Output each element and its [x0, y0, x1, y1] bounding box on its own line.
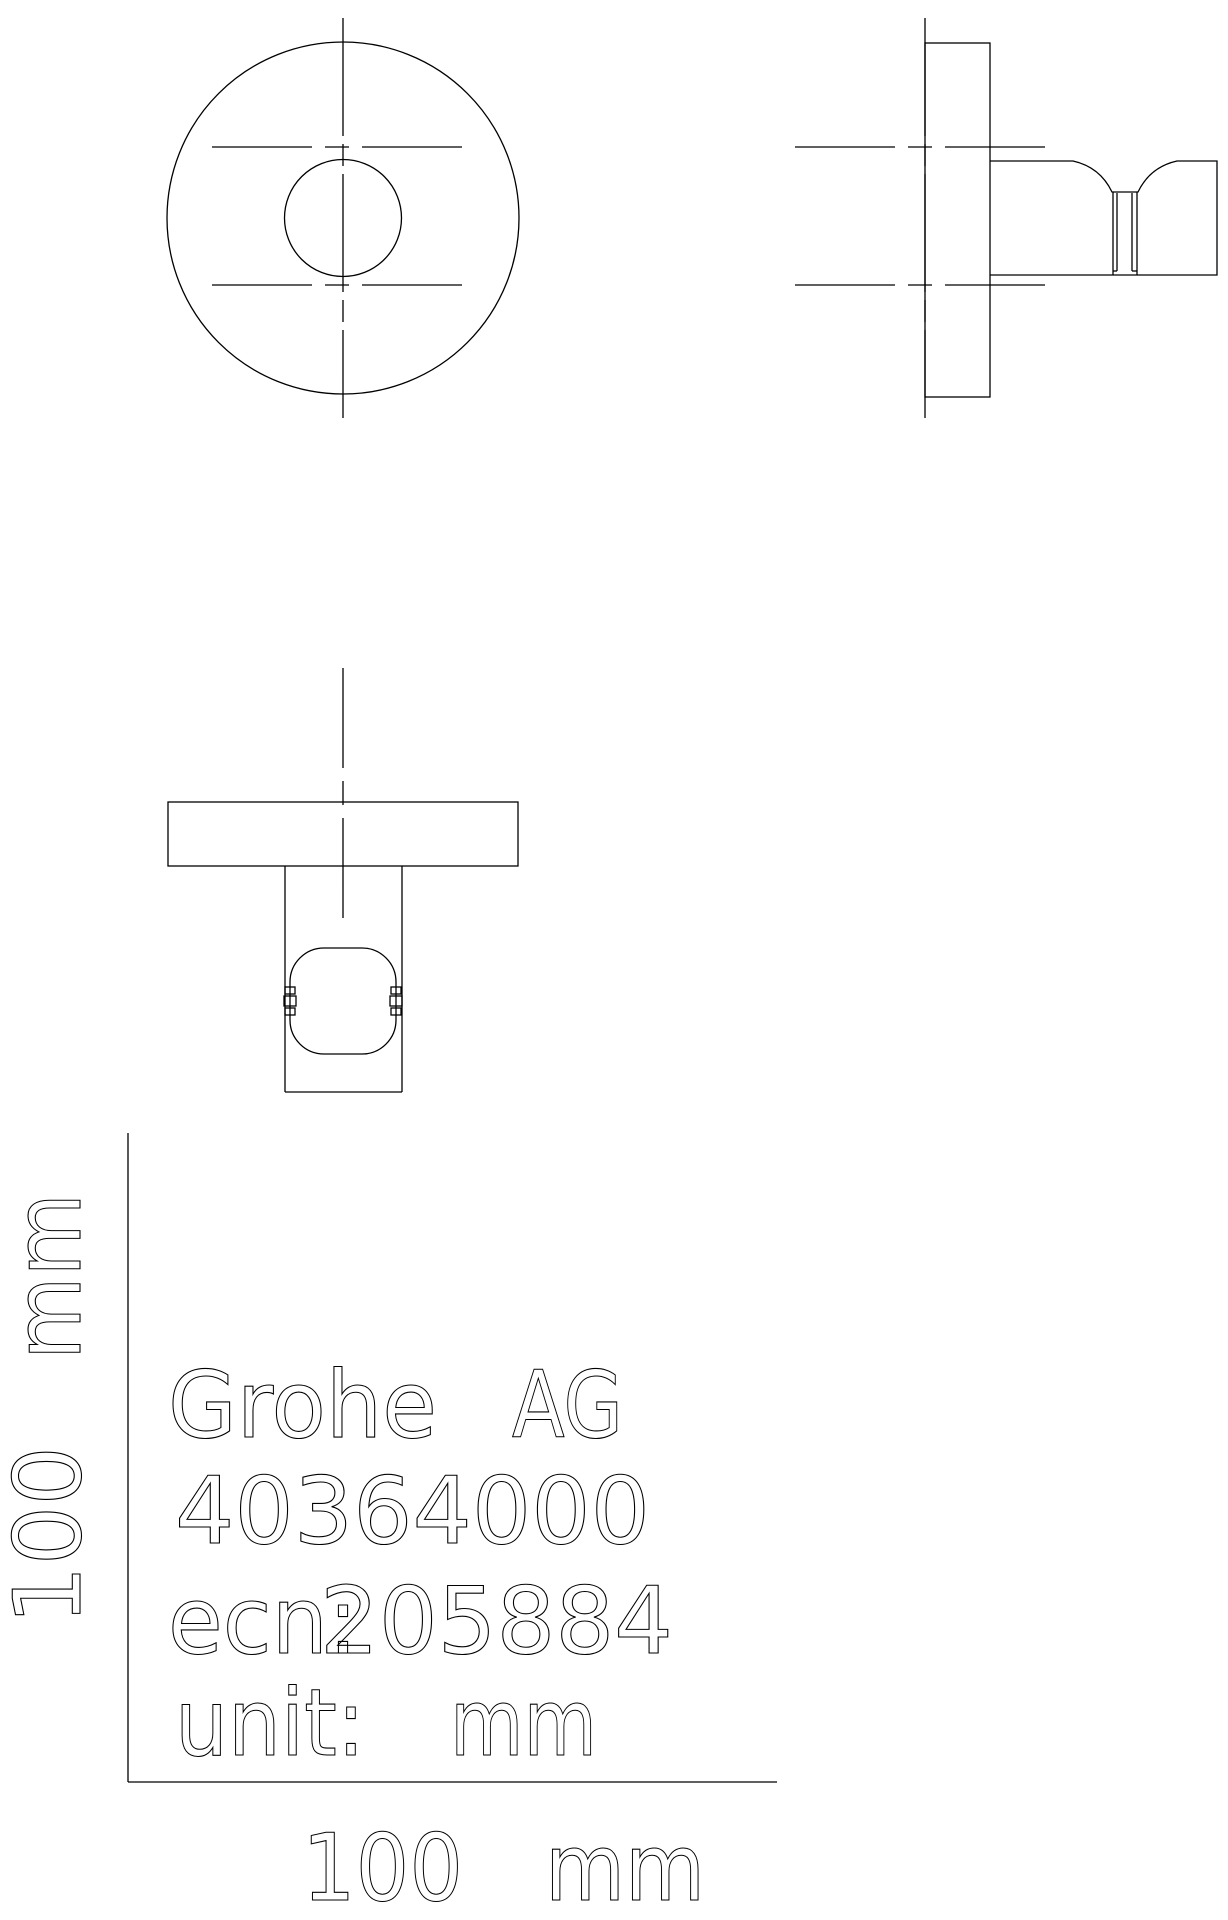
- ecn-number-text: 205884: [320, 1567, 673, 1675]
- x-scale-value-label: 100: [302, 1814, 463, 1920]
- drawing-sheet: Grohe AG 40364000 ecn: 205884 unit: mm 1…: [0, 0, 1228, 1920]
- front-view: [167, 18, 519, 418]
- x-scale-unit-label: mm: [545, 1814, 705, 1920]
- y-scale-value-label: 100: [0, 1446, 102, 1625]
- bottom-view: [168, 668, 518, 1092]
- insert-squircle-outline: [290, 948, 396, 1054]
- hook-body-profile: [990, 161, 1217, 275]
- title-block: Grohe AG 40364000 ecn: 205884 unit: mm: [168, 1351, 673, 1777]
- wall-plate-side-outline: [925, 43, 990, 397]
- product-number-text: 40364000: [175, 1457, 650, 1565]
- company-suffix-text: AG: [512, 1351, 623, 1459]
- y-scale-unit-label: mm: [0, 1193, 102, 1360]
- side-view: [795, 18, 1217, 418]
- technical-drawing-canvas: Grohe AG 40364000 ecn: 205884 unit: mm 1…: [0, 0, 1228, 1920]
- unit-value-text: mm: [450, 1669, 597, 1777]
- unit-label-text: unit:: [175, 1669, 365, 1777]
- company-name-text: Grohe: [168, 1351, 437, 1459]
